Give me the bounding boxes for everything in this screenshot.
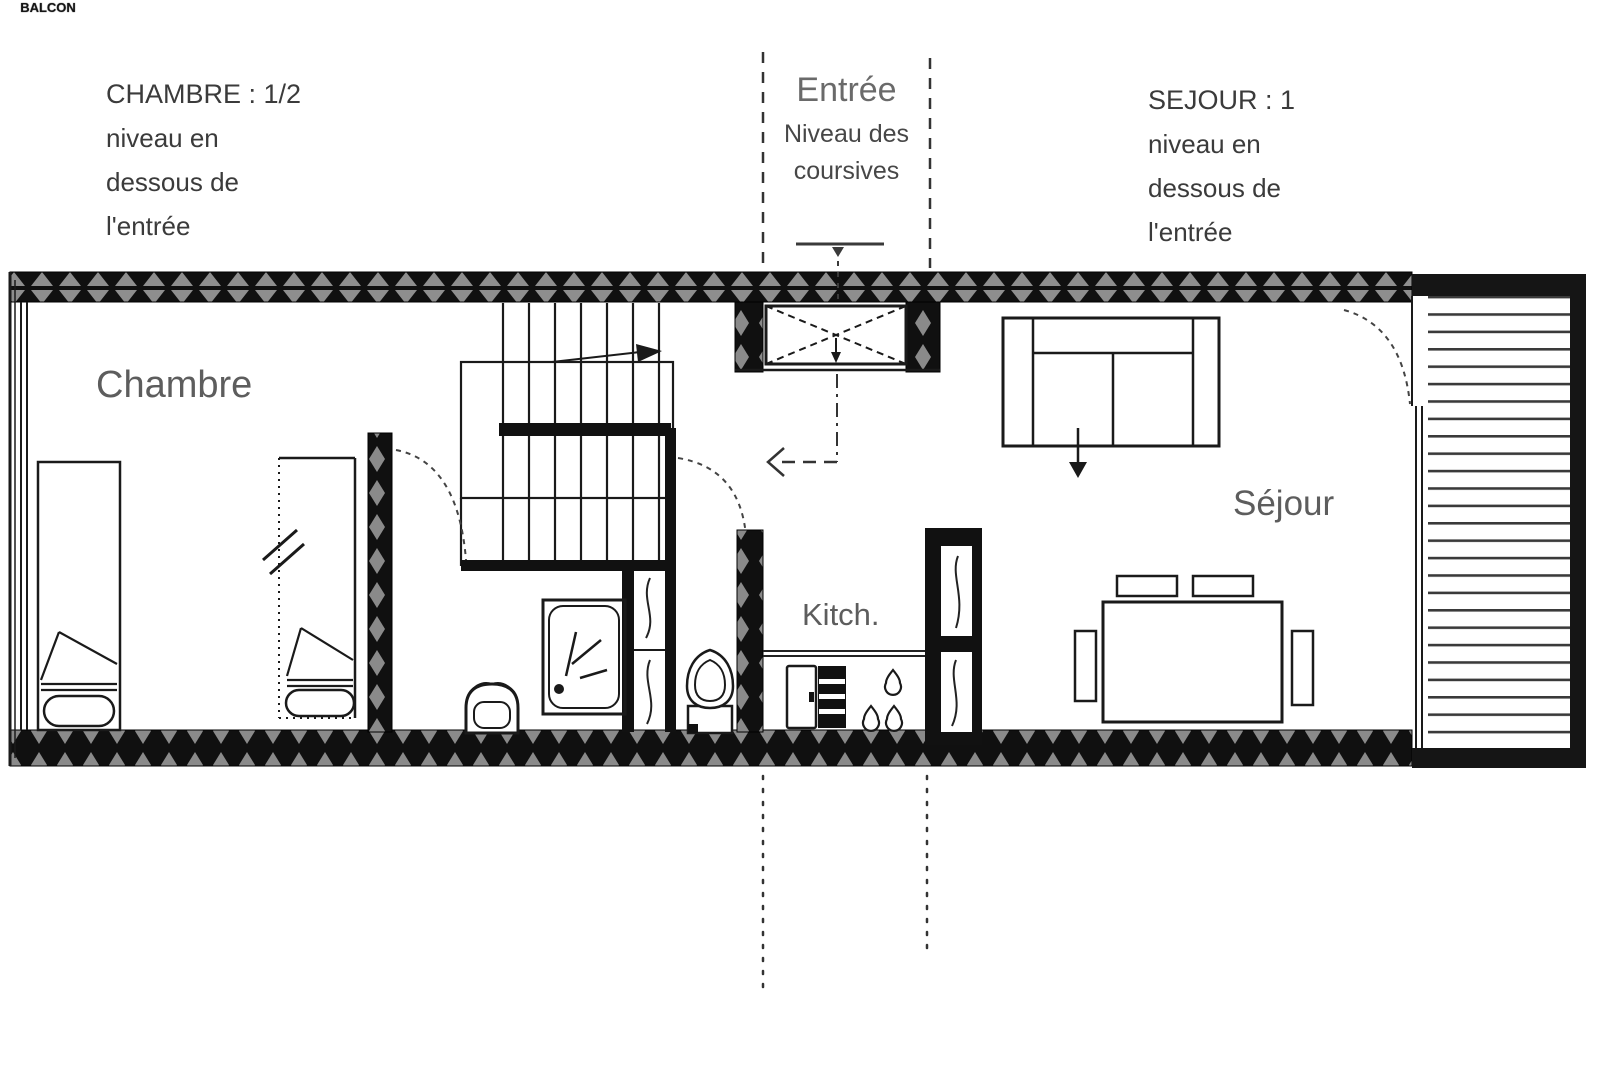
hall-door-swing <box>678 458 746 536</box>
room-label-sejour: Séjour <box>1233 484 1334 524</box>
entree-level-note: Entrée Niveau des coursives <box>763 70 930 190</box>
dining-table <box>1103 602 1282 722</box>
balcony-decking <box>1428 296 1570 748</box>
bed-2 <box>263 458 355 718</box>
bedroom-partition-wall <box>368 433 392 732</box>
floor-plan-page: CHAMBRE : 1/2 niveau en dessous de l'ent… <box>0 0 1606 1070</box>
sejour-note-line1: niveau en <box>1148 122 1295 166</box>
bottom-exterior-wall <box>10 730 1412 766</box>
sofa <box>1003 318 1219 478</box>
room-label-kitchen: Kitch. <box>802 597 880 633</box>
balcony-glass-wall <box>1412 296 1422 748</box>
chambre-note-line2: dessous de <box>106 160 301 204</box>
kitchen-left-wall <box>737 530 763 732</box>
bathroom-walls <box>622 428 676 732</box>
technical-shaft <box>925 528 982 745</box>
chair-right <box>1292 631 1313 705</box>
chair-top-right <box>1193 576 1253 596</box>
sejour-note-line2: dessous de <box>1148 166 1295 210</box>
bedroom-door-swing <box>396 450 466 560</box>
kitchen-appliances <box>787 666 902 731</box>
entry-direction-arrow <box>768 374 837 476</box>
sink-burners <box>863 670 902 731</box>
vestibule-right-wall <box>906 302 940 372</box>
sejour-note-title: SEJOUR : 1 <box>1148 78 1295 122</box>
room-label-chambre: Chambre <box>96 364 252 407</box>
entree-note-line2: coursives <box>763 153 930 190</box>
entrance-vestibule <box>735 302 940 372</box>
bed-1 <box>38 462 120 730</box>
balcony-door-swing <box>1344 310 1410 404</box>
vestibule-left-wall <box>735 302 763 372</box>
chambre-level-note: CHAMBRE : 1/2 niveau en dessous de l'ent… <box>106 72 301 248</box>
entree-note-line1: Niveau des <box>763 116 930 153</box>
toilet <box>687 650 733 733</box>
shower <box>543 600 625 714</box>
staircase <box>461 303 676 571</box>
sejour-level-note: SEJOUR : 1 niveau en dessous de l'entrée <box>1148 78 1295 254</box>
kitchen-counter <box>763 651 925 656</box>
fridge-handle <box>809 692 814 702</box>
stair-rail <box>499 423 671 436</box>
chair-left <box>1075 631 1096 701</box>
sejour-note-line3: l'entrée <box>1148 210 1295 254</box>
chambre-note-line3: l'entrée <box>106 204 301 248</box>
chambre-note-title: CHAMBRE : 1/2 <box>106 72 301 116</box>
entree-note-title: Entrée <box>763 70 930 110</box>
level-guide-lines <box>763 52 930 988</box>
bed-2-pillow <box>286 690 354 716</box>
top-exterior-wall <box>10 272 1412 302</box>
balcony <box>1344 274 1586 768</box>
bed-2-blanket <box>287 628 353 686</box>
chair-top-left <box>1117 576 1177 596</box>
dining-set <box>1075 576 1313 722</box>
stove <box>818 666 846 728</box>
bed-2-break-marks <box>263 530 304 574</box>
washbasin <box>466 683 518 733</box>
left-window-wall <box>10 272 27 766</box>
chambre-note-line1: niveau en <box>106 116 301 160</box>
